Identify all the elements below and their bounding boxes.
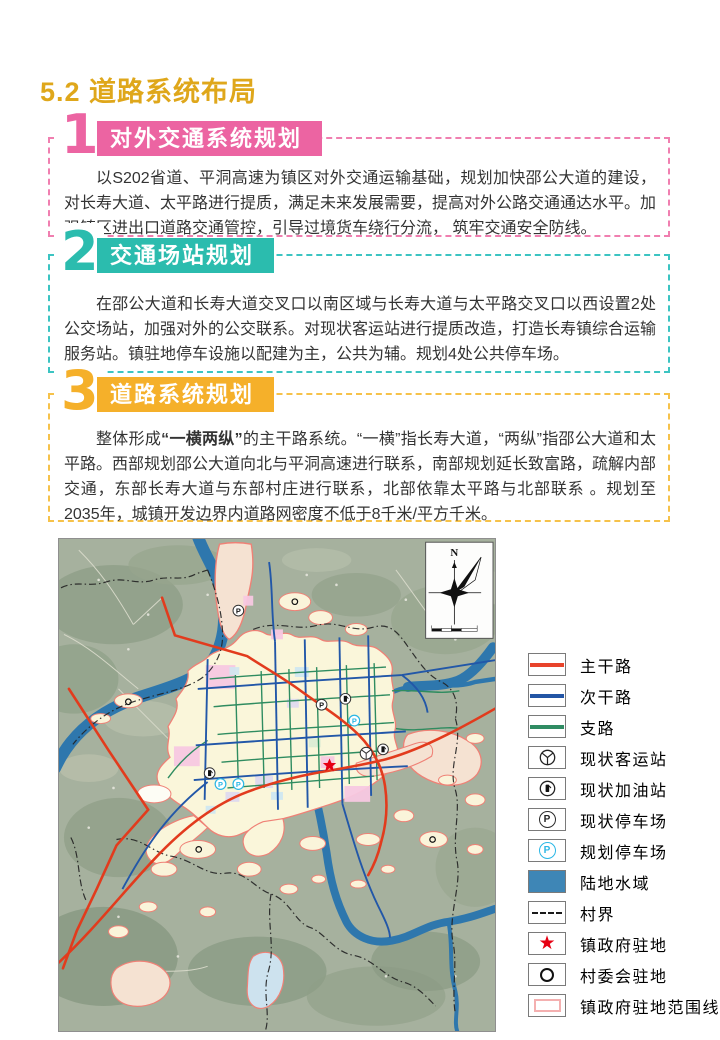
section-body-text: 以S202省道、平洞高速为镇区对外交通运输基础，规划加快邵公大道的建设，对长寿大… bbox=[64, 166, 656, 241]
section-heading: 交通场站规划 bbox=[97, 238, 274, 273]
town-seat-range-icon bbox=[528, 994, 566, 1017]
legend-item-village-boundary: 村界 bbox=[528, 901, 720, 924]
svg-text:P: P bbox=[236, 780, 241, 789]
legend-item-secondary-road: 次干路 bbox=[528, 684, 720, 707]
svg-text:P: P bbox=[218, 780, 223, 789]
gas-station-icon bbox=[204, 768, 215, 779]
branch-road-line-icon bbox=[528, 715, 566, 738]
legend-item-town-seat-range: 镇政府驻地范围线 bbox=[528, 994, 720, 1017]
existing-parking-icon: P bbox=[528, 808, 566, 831]
gas-station-icon bbox=[528, 777, 566, 800]
legend-item-branch-road: 支路 bbox=[528, 715, 720, 738]
section-heading: 道路系统规划 bbox=[97, 377, 274, 412]
legend-item-bus-station: 现状客运站 bbox=[528, 746, 720, 769]
svg-text:P: P bbox=[352, 716, 357, 725]
planned-parking-icon: P bbox=[215, 779, 226, 790]
main-road-line-icon bbox=[528, 653, 566, 676]
section-transport-stations: 2 交通场站规划 在邵公大道和长寿大道交叉口以南区域与长寿大道与太平路交叉口以西… bbox=[48, 254, 670, 373]
bus-station-icon bbox=[360, 747, 372, 759]
existing-parking-icon: P bbox=[233, 605, 244, 616]
legend-item-water: 陆地水域 bbox=[528, 870, 720, 893]
legend-item-main-road: 主干路 bbox=[528, 653, 720, 676]
village-boundary-dash-icon bbox=[528, 901, 566, 924]
gas-station-icon bbox=[378, 744, 389, 755]
legend-item-village-committee: 村委会驻地 bbox=[528, 963, 720, 986]
village-committee-ring-icon bbox=[528, 963, 566, 986]
town-government-star-icon: ★ bbox=[528, 932, 566, 955]
map-legend: 主干路 次干路 支路 现状客运站 现状加油站 bbox=[528, 653, 720, 1025]
gas-station-icon bbox=[340, 693, 351, 704]
section-body-text: 整体形成“一横两纵”的主干路系统。“一横”指长寿大道，“两纵”指邵公大道和太平路… bbox=[64, 427, 656, 527]
planning-document-page: { "page": { "title": "5.2 道路系统布局" }, "se… bbox=[0, 0, 720, 1040]
legend-item-town-government: ★ 镇政府驻地 bbox=[528, 932, 720, 955]
secondary-road-line-icon bbox=[528, 684, 566, 707]
compass-box: N bbox=[426, 542, 493, 638]
water-fill-icon bbox=[528, 870, 566, 893]
planned-parking-icon: P bbox=[528, 839, 566, 862]
map-svg: P P P P P bbox=[59, 539, 495, 1031]
legend-item-planned-parking: P 规划停车场 bbox=[528, 839, 720, 862]
svg-text:P: P bbox=[236, 606, 241, 615]
road-system-planning-map: P P P P P bbox=[58, 538, 496, 1032]
section-body-text: 在邵公大道和长寿大道交叉口以南区域与长寿大道与太平路交叉口以西设置2处公交场站，… bbox=[64, 292, 656, 367]
body-text-bold: “一横两纵” bbox=[161, 431, 242, 448]
bus-station-icon bbox=[528, 746, 566, 769]
existing-parking-icon: P bbox=[316, 699, 327, 710]
section-road-system: 3 道路系统规划 整体形成“一横两纵”的主干路系统。“一横”指长寿大道，“两纵”… bbox=[48, 393, 670, 522]
section-external-traffic: 1 对外交通系统规划 以S202省道、平洞高速为镇区对外交通运输基础，规划加快邵… bbox=[48, 137, 670, 237]
planned-parking-icon: P bbox=[349, 715, 360, 726]
body-text-part: 整体形成 bbox=[96, 431, 161, 448]
legend-item-gas-station: 现状加油站 bbox=[528, 777, 720, 800]
legend-item-existing-parking: P 现状停车场 bbox=[528, 808, 720, 831]
svg-text:P: P bbox=[319, 701, 324, 710]
planned-parking-icon: P bbox=[233, 779, 244, 790]
compass-north-label: N bbox=[450, 547, 458, 559]
section-heading: 对外交通系统规划 bbox=[97, 121, 322, 156]
